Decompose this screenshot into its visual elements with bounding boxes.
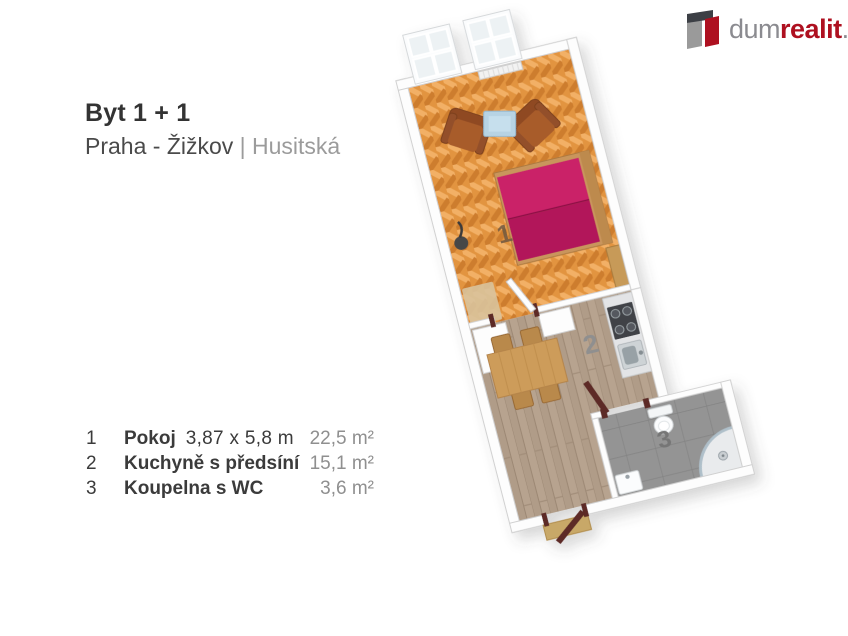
page-title: Byt 1 + 1 xyxy=(85,99,340,128)
page: { "brand": { "part_gray1": "dum", "part_… xyxy=(0,0,848,636)
legend-room-name: Kuchyně s předsíní xyxy=(124,453,299,474)
legend-row-1: 1 Pokoj3,87 x 5,8 m 22,5 m² xyxy=(86,426,374,451)
legend-name-cell: Kuchyně s předsíní xyxy=(124,451,302,476)
legend-name-cell: Pokoj3,87 x 5,8 m xyxy=(124,426,302,451)
legend-room-name: Pokoj xyxy=(124,428,176,449)
legend-number: 3 xyxy=(86,476,124,501)
location-divider: | xyxy=(240,133,246,159)
location-street: Husitská xyxy=(252,133,340,159)
room-legend: 1 Pokoj3,87 x 5,8 m 22,5 m² 2 Kuchyně s … xyxy=(86,426,374,501)
legend-row-3: 3 Koupelna s WC 3,6 m² xyxy=(86,476,374,501)
legend-room-area: 15,1 m² xyxy=(302,451,374,476)
floor-plan-svg: 1 xyxy=(368,0,848,636)
legend-row-2: 2 Kuchyně s předsíní 15,1 m² xyxy=(86,451,374,476)
legend-number: 2 xyxy=(86,451,124,476)
window-1 xyxy=(403,24,462,84)
window-2 xyxy=(463,9,522,69)
location-city: Praha - Žižkov xyxy=(85,133,233,159)
legend-room-area: 3,6 m² xyxy=(302,476,374,501)
listing-header: Byt 1 + 1 Praha - Žižkov | Husitská xyxy=(85,99,340,160)
apartment-plan: 1 xyxy=(385,0,760,554)
legend-number: 1 xyxy=(86,426,124,451)
coffee-table xyxy=(483,111,515,137)
legend-room-area: 22,5 m² xyxy=(302,426,374,451)
floor-plan: 1 xyxy=(368,0,848,636)
legend-room-dimensions: 3,87 x 5,8 m xyxy=(186,428,294,449)
legend-name-cell: Koupelna s WC xyxy=(124,476,302,501)
legend-room-name: Koupelna s WC xyxy=(124,478,263,499)
listing-location: Praha - Žižkov | Husitská xyxy=(85,133,340,160)
